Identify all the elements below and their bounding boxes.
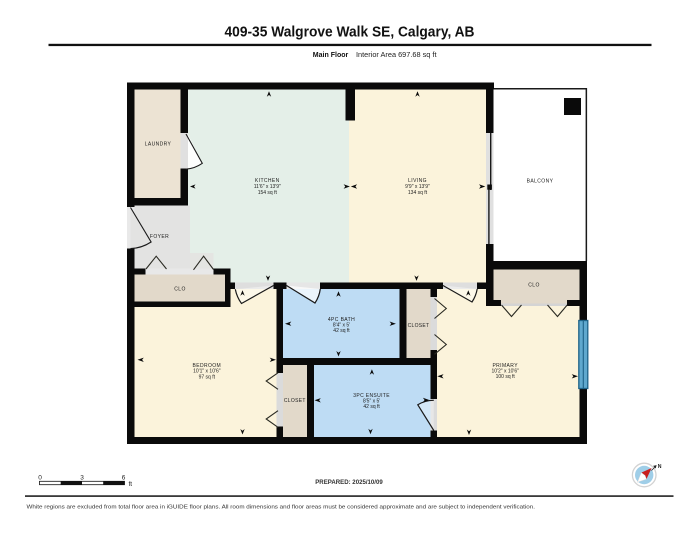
svg-text:134 sq ft: 134 sq ft bbox=[408, 190, 428, 196]
svg-text:PREPARED: 2025/10/09: PREPARED: 2025/10/09 bbox=[315, 480, 383, 486]
svg-text:KITCHEN: KITCHEN bbox=[255, 178, 280, 184]
svg-text:CLOSET: CLOSET bbox=[408, 323, 430, 329]
svg-text:FOYER: FOYER bbox=[150, 234, 169, 240]
svg-text:White regions are excluded fro: White regions are excluded from total fl… bbox=[27, 505, 536, 511]
svg-text:BALCONY: BALCONY bbox=[527, 179, 554, 185]
svg-text:CLO: CLO bbox=[528, 283, 539, 289]
svg-text:Main Floor: Main Floor bbox=[313, 52, 349, 59]
svg-text:N: N bbox=[658, 464, 662, 470]
svg-text:LIVING: LIVING bbox=[408, 178, 427, 184]
svg-text:ft: ft bbox=[129, 481, 133, 488]
svg-text:0: 0 bbox=[38, 475, 42, 482]
svg-text:LAUNDRY: LAUNDRY bbox=[145, 141, 172, 147]
svg-text:100 sq ft: 100 sq ft bbox=[496, 374, 516, 380]
svg-text:409-35 Walgrove Walk SE, Calga: 409-35 Walgrove Walk SE, Calgary, AB bbox=[225, 24, 475, 40]
svg-text:Interior Area 697.68 sq ft: Interior Area 697.68 sq ft bbox=[356, 52, 437, 59]
svg-text:154 sq ft: 154 sq ft bbox=[258, 190, 278, 196]
svg-text:CLOSET: CLOSET bbox=[284, 398, 306, 404]
svg-text:97 sq ft: 97 sq ft bbox=[199, 375, 216, 381]
svg-text:42 sq ft: 42 sq ft bbox=[363, 404, 380, 410]
svg-text:6: 6 bbox=[122, 475, 126, 482]
svg-text:3: 3 bbox=[80, 475, 84, 482]
svg-text:CLO: CLO bbox=[174, 287, 185, 293]
svg-text:42 sq ft: 42 sq ft bbox=[333, 328, 350, 334]
